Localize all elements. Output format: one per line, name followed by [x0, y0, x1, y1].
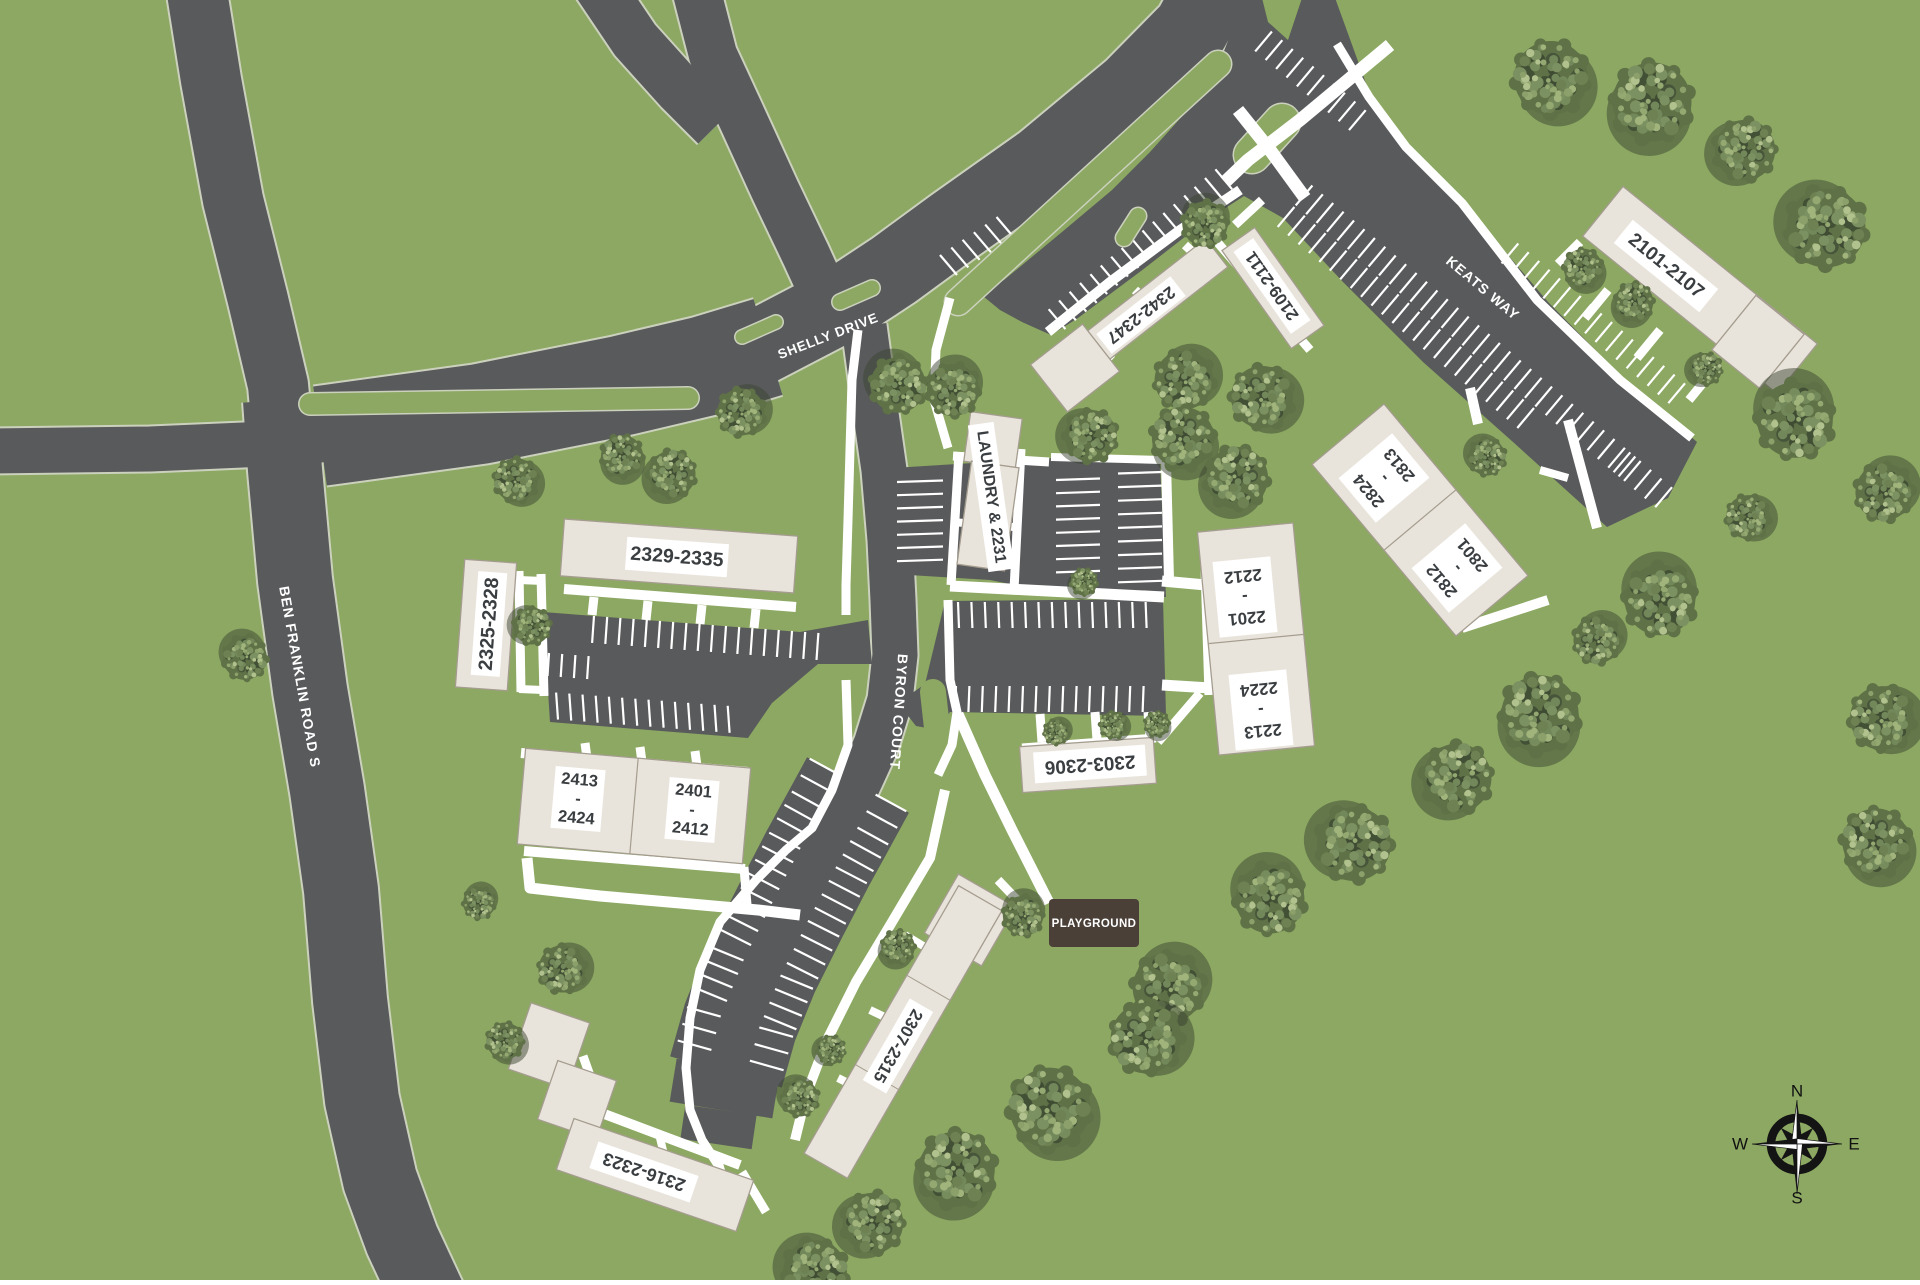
svg-text:2412: 2412 [671, 818, 709, 839]
svg-text:PLAYGROUND: PLAYGROUND [1052, 918, 1137, 930]
svg-text:S: S [1791, 1189, 1802, 1208]
svg-text:W: W [1732, 1135, 1748, 1154]
svg-text:2424: 2424 [557, 807, 596, 828]
svg-text:2401: 2401 [675, 781, 713, 802]
svg-text:2212: 2212 [1223, 565, 1262, 588]
svg-text:2201: 2201 [1227, 607, 1266, 630]
svg-text:N: N [1791, 1082, 1803, 1101]
svg-text:2213: 2213 [1243, 720, 1282, 743]
svg-text:2224: 2224 [1239, 678, 1279, 701]
svg-text:E: E [1848, 1135, 1859, 1154]
svg-text:2413: 2413 [561, 770, 599, 791]
